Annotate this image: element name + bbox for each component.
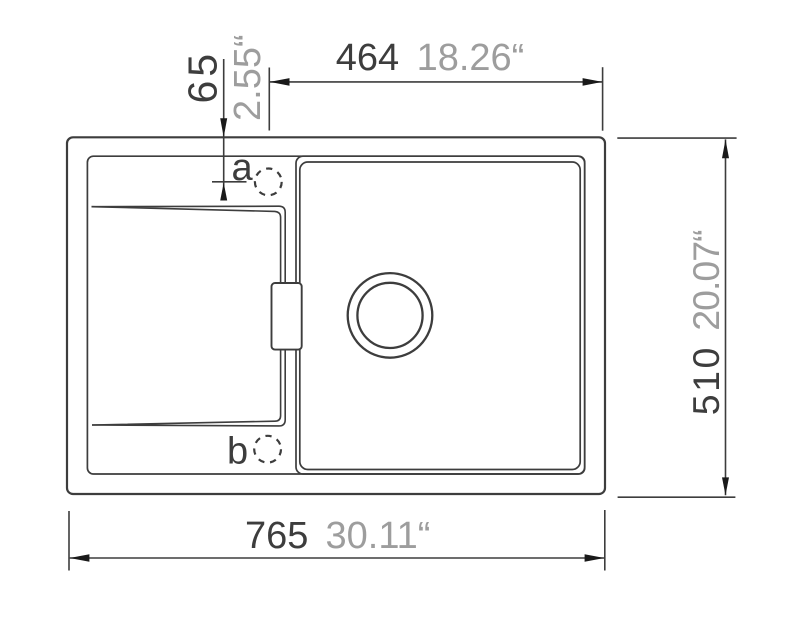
svg-text:510 20.07“: 510 20.07“ <box>685 230 727 415</box>
svg-text:65: 65 <box>180 50 226 104</box>
svg-text:2.55“: 2.55“ <box>227 34 269 121</box>
svg-text:464: 464 <box>336 37 399 79</box>
svg-text:b: b <box>227 430 248 472</box>
svg-text:30.11“: 30.11“ <box>326 515 431 557</box>
svg-text:18.26“: 18.26“ <box>417 37 525 79</box>
svg-text:765: 765 <box>245 515 308 557</box>
